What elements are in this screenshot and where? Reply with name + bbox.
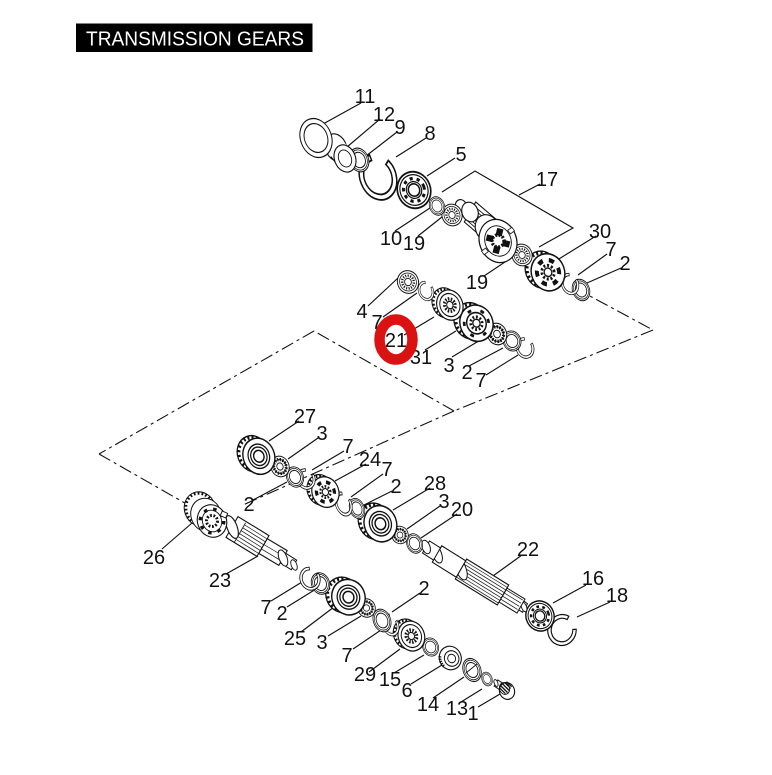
svg-text:29: 29 — [354, 664, 376, 686]
svg-text:19: 19 — [403, 233, 425, 255]
svg-text:25: 25 — [284, 628, 306, 650]
svg-text:22: 22 — [517, 539, 539, 561]
svg-text:2: 2 — [461, 362, 472, 384]
svg-text:16: 16 — [582, 568, 604, 590]
svg-text:24: 24 — [359, 449, 381, 471]
svg-text:2: 2 — [619, 253, 630, 275]
svg-text:2: 2 — [276, 603, 287, 625]
svg-text:7: 7 — [605, 239, 616, 261]
svg-text:23: 23 — [209, 570, 231, 592]
svg-text:7: 7 — [342, 436, 353, 458]
svg-text:1: 1 — [467, 703, 478, 725]
svg-text:3: 3 — [316, 423, 327, 445]
svg-text:TRANSMISSION GEARS: TRANSMISSION GEARS — [86, 29, 304, 51]
svg-text:12: 12 — [373, 104, 395, 126]
svg-text:18: 18 — [606, 585, 628, 607]
svg-text:21: 21 — [385, 330, 407, 352]
svg-text:9: 9 — [394, 117, 405, 139]
svg-text:26: 26 — [143, 547, 165, 569]
svg-text:20: 20 — [451, 499, 473, 521]
svg-text:2: 2 — [418, 578, 429, 600]
svg-text:14: 14 — [417, 694, 439, 716]
svg-text:17: 17 — [536, 169, 558, 191]
svg-text:10: 10 — [380, 228, 402, 250]
svg-text:5: 5 — [455, 144, 466, 166]
svg-text:2: 2 — [243, 494, 254, 516]
svg-text:19: 19 — [466, 272, 488, 294]
svg-text:15: 15 — [379, 669, 401, 691]
svg-text:7: 7 — [475, 370, 486, 392]
svg-text:7: 7 — [341, 645, 352, 667]
svg-text:7: 7 — [260, 597, 271, 619]
svg-text:3: 3 — [316, 632, 327, 654]
svg-text:6: 6 — [401, 680, 412, 702]
svg-text:3: 3 — [438, 491, 449, 513]
svg-text:2: 2 — [390, 476, 401, 498]
svg-text:3: 3 — [443, 355, 454, 377]
svg-text:27: 27 — [294, 406, 316, 428]
svg-text:13: 13 — [446, 698, 468, 720]
svg-text:4: 4 — [356, 301, 367, 323]
svg-text:8: 8 — [424, 123, 435, 145]
